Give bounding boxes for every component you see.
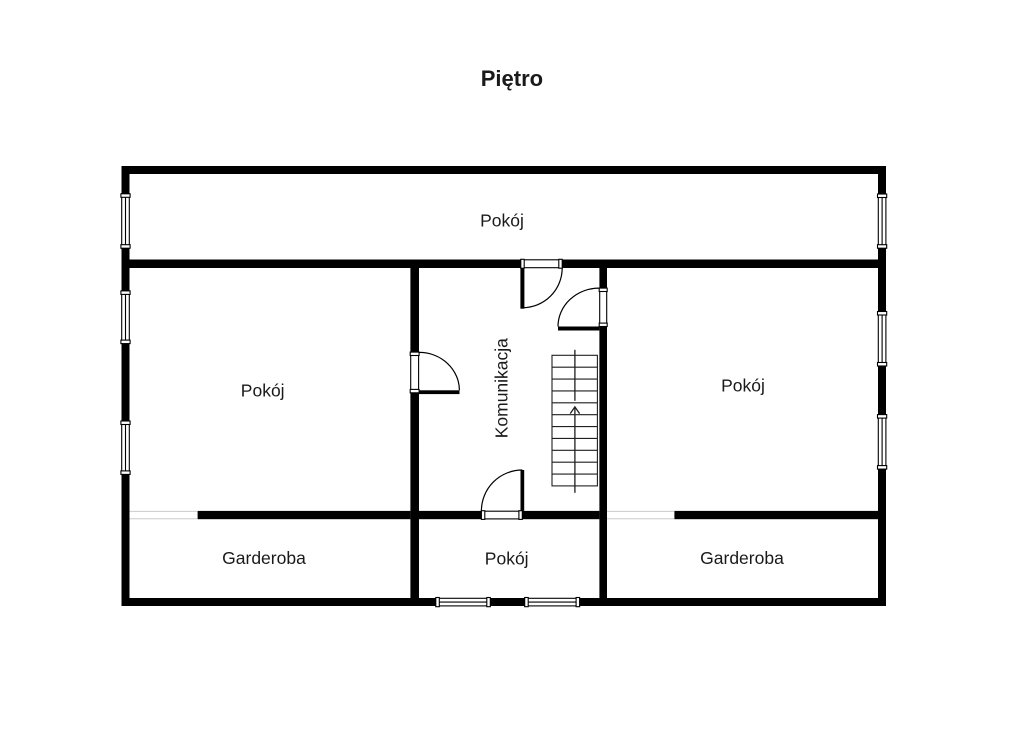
svg-text:Piętro: Piętro — [481, 66, 543, 91]
svg-text:Pokój: Pokój — [480, 210, 524, 230]
svg-text:Pokój: Pokój — [241, 380, 285, 400]
svg-text:Garderoba: Garderoba — [700, 548, 784, 568]
svg-text:Garderoba: Garderoba — [222, 548, 306, 568]
svg-text:Komunikacja: Komunikacja — [492, 338, 512, 438]
svg-text:Pokój: Pokój — [485, 549, 529, 569]
svg-text:Pokój: Pokój — [721, 375, 765, 395]
